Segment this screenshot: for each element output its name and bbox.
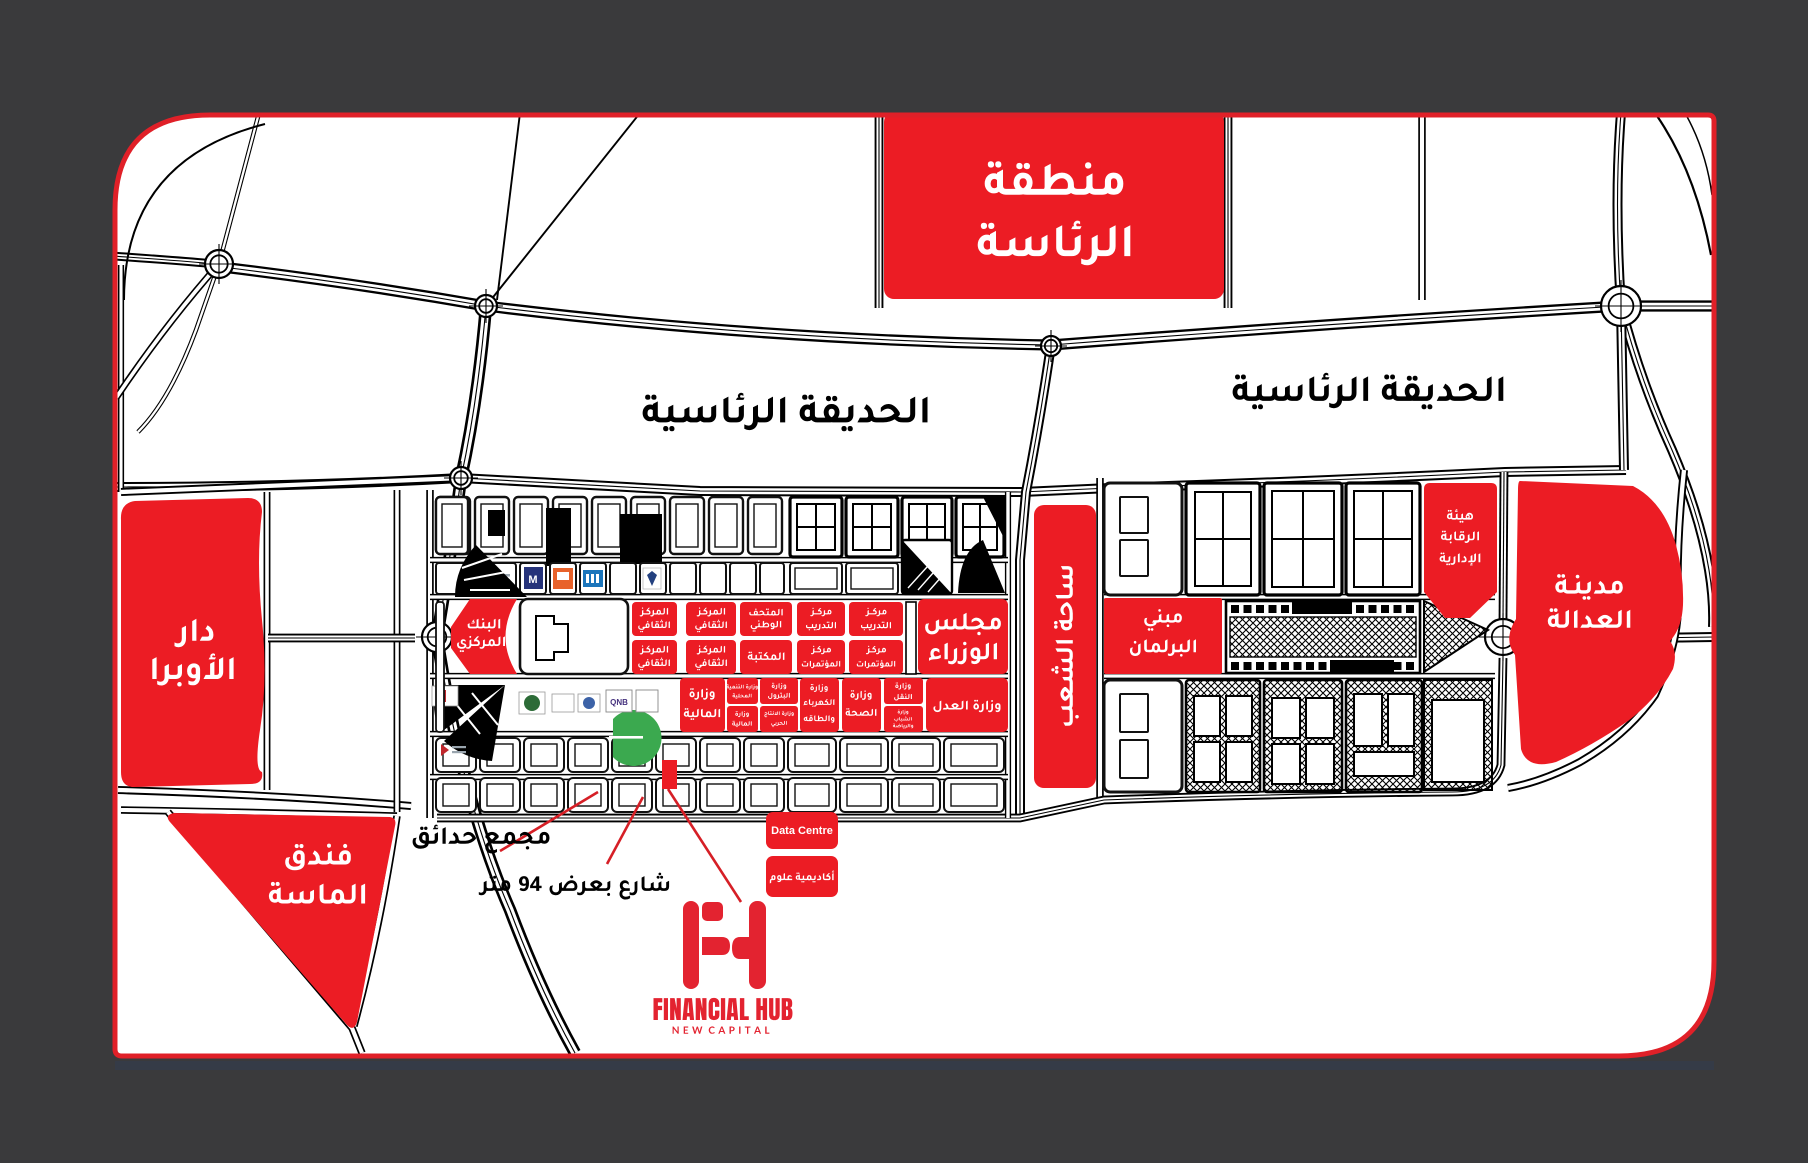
svg-text:M: M: [528, 574, 537, 586]
svg-text:QNB: QNB: [610, 698, 628, 707]
svg-text:Data Centre: Data Centre: [771, 825, 833, 837]
